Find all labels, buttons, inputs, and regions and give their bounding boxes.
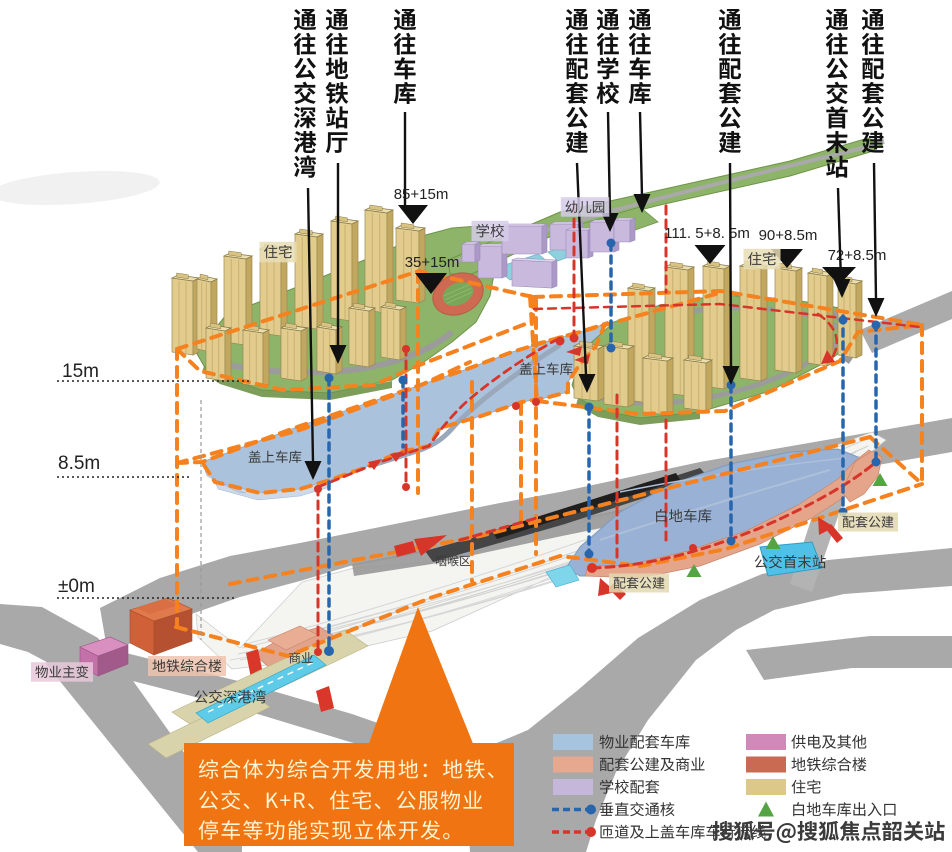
svg-text:35+15m: 35+15m <box>405 254 460 271</box>
svg-text:85+15m: 85+15m <box>394 186 449 203</box>
svg-text:±0m: ±0m <box>58 576 95 597</box>
svg-text:111. 5+8. 5m: 111. 5+8. 5m <box>664 225 750 242</box>
svg-text:8.5m: 8.5m <box>58 453 100 474</box>
svg-text:15m: 15m <box>62 361 99 382</box>
svg-text:72+8.5m: 72+8.5m <box>828 247 887 264</box>
svg-text:90+8.5m: 90+8.5m <box>759 227 818 244</box>
